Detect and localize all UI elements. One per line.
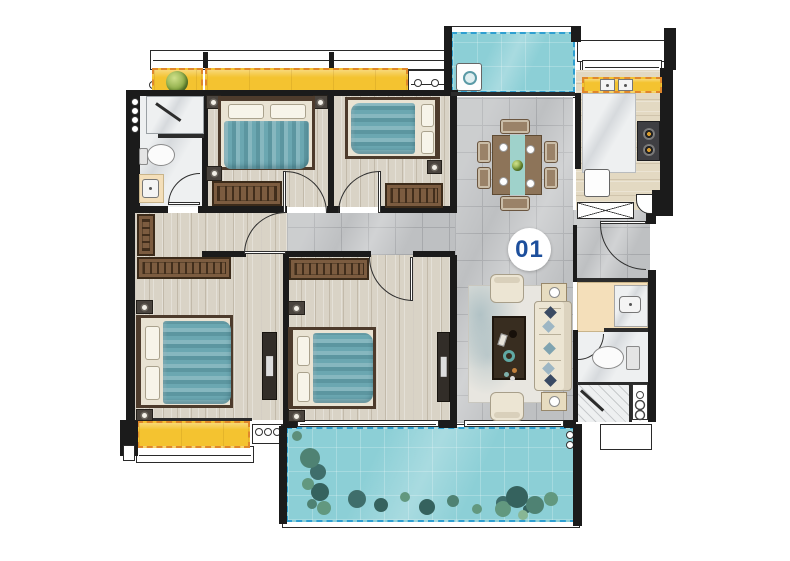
washing-machine-icon [456,63,482,91]
pillow [145,366,160,400]
pillow [421,104,434,127]
wall-segment [664,28,676,70]
dining-chair [544,141,558,163]
dining-set [475,117,575,213]
shower-floor [577,384,629,422]
pipe-icon [431,79,439,87]
wall-segment [439,420,457,428]
decor-bowl [509,330,517,338]
balcony-slider-window [297,420,439,427]
wardrobe [289,258,369,280]
dining-chair [477,141,491,163]
unit-number-badge: 01 [508,228,551,271]
wall-segment [575,93,581,169]
side-table-lamp [541,392,567,411]
pipe-icon [264,428,272,436]
burner-icon [643,128,655,140]
toilet-icon [147,144,175,166]
toilet-icon [626,346,640,370]
plant-icon [512,160,523,171]
nightstand [427,160,442,174]
master-bay-window-sill [136,446,254,463]
bed [345,97,440,159]
window-band-top [150,50,455,70]
bedroom-4-door-leaf [410,257,413,301]
pipe-icon [131,116,139,124]
wall-segment [198,206,287,213]
dining-chair [477,167,491,189]
wall-segment [328,96,334,207]
pipe-icon [131,107,139,115]
wall-segment [573,225,577,282]
pillow [270,104,306,119]
floor-plan: 01 [0,0,790,561]
fridge-icon [584,169,610,197]
wall-segment [286,251,371,257]
wardrobe [137,257,231,279]
dining-plate-icon [526,179,535,188]
dining-plate-icon [526,145,535,154]
pillow [145,326,160,360]
pipe-icon [131,98,139,106]
water-heater-icon [632,384,648,420]
bed [136,315,233,408]
wall-segment [577,278,648,282]
window-mullion [329,52,334,68]
dining-chair [500,119,530,134]
pipe-icon [414,79,422,87]
kitchen-sink-icon [600,79,615,91]
wall-segment [126,206,168,213]
kitchen-counter [582,93,636,173]
bed-blanket [163,321,231,404]
wall-segment [451,92,575,96]
wall-segment [573,424,582,526]
plant-icon [292,431,302,441]
pipe-icon [131,125,139,133]
unit-number-label: 01 [515,236,544,264]
toilet-icon [592,346,624,369]
entry-door-leaf [600,221,646,224]
window-mullion [203,52,208,68]
nightstand [313,95,328,109]
bed [288,327,376,409]
coffee-table [492,316,526,380]
corridor-tile-floor [287,213,455,255]
tv-stand [262,332,277,400]
washer-drum [463,71,477,85]
wall-segment [450,255,457,423]
wall-segment [652,190,673,216]
bed-blanket [351,103,415,154]
wall-segment [158,134,204,138]
bed [218,96,315,170]
nightstand [136,300,153,314]
wall-segment [648,270,656,422]
nightstand [136,409,153,421]
window-line [136,418,252,421]
tv-panel [206,166,222,181]
washbasin-icon [142,179,159,198]
balcony-slider-window [464,420,564,427]
dining-chair [500,196,530,211]
decor-books [497,333,507,347]
nightstand [288,301,305,315]
master-bedroom-door-leaf [244,251,286,254]
bathroom-1-door-leaf [168,202,200,205]
decor-candles [512,368,517,373]
dining-plate-icon [499,143,508,152]
plant-row-bottom [348,490,366,508]
wall-segment [279,426,287,524]
pillow [297,372,310,402]
entry-landing [600,424,652,450]
bed-blanket [224,121,309,169]
dining-plate-icon [499,177,508,186]
side-table-lamp [541,283,567,302]
pillow [297,336,310,366]
nightstand [288,410,305,422]
armchair [490,392,524,421]
plant-cluster-right [506,486,528,508]
stove-icon [637,121,660,161]
wardrobe [212,181,282,206]
tv-stand [437,332,450,402]
wall-segment [413,251,455,257]
decor-plate [503,350,515,362]
wall-segment [450,95,457,213]
armchair [490,274,524,303]
pipe-icon [255,428,263,436]
wardrobe [137,214,155,256]
pillow [421,131,434,154]
plant-cluster-left [300,448,320,468]
shoe-cabinet-icon [577,202,634,219]
bedroom-3-door-leaf [378,171,381,213]
pipe-box [123,445,135,461]
bay-window-seat-master [137,421,250,448]
kitchen-sink-icon [618,79,633,91]
burner-icon [643,144,655,156]
kitchen-ledge [577,40,675,62]
bedroom-2-door-leaf [283,171,286,213]
wall-segment [571,26,581,42]
wall-segment [444,26,452,96]
garden-balcony [286,427,576,522]
dining-chair [544,167,558,189]
wall-segment [604,328,648,332]
pillow [228,104,264,119]
wardrobe [385,183,443,208]
bed-blanket [313,333,373,403]
washbasin-icon [619,296,641,313]
wall-segment [126,212,135,422]
